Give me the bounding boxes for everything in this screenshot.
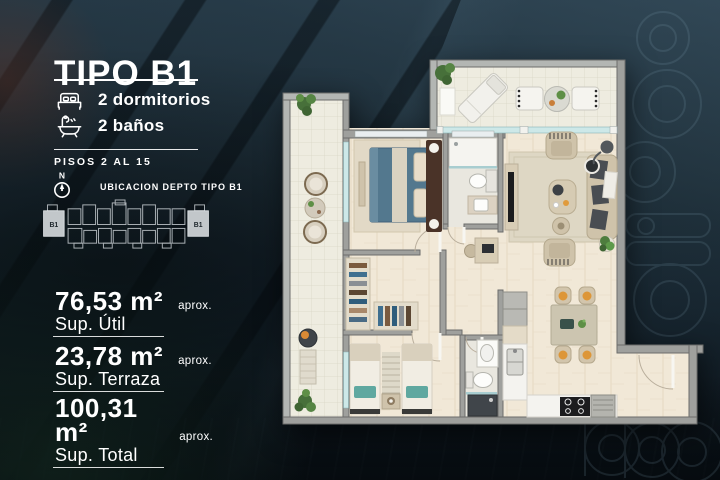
area-util-value: 76,53 m²: [53, 289, 163, 313]
area-terraza-approx: aprox.: [178, 355, 212, 367]
brochure-page: TIPO B1 2 dormitorios: [0, 0, 720, 480]
page-title: TIPO B1: [54, 56, 197, 91]
svg-text:B1: B1: [49, 222, 58, 229]
building-location-map: B1 B1: [42, 199, 210, 252]
area-divider: [53, 336, 164, 337]
area-util-label: Sup. Útil: [53, 314, 213, 334]
area-total-approx: aprox.: [179, 431, 213, 443]
area-terraza: 23,78 m² aprox. Sup. Terraza: [53, 344, 213, 392]
area-total-value: 100,31 m²: [53, 396, 164, 444]
north-compass-icon: N: [52, 170, 72, 200]
area-divider: [53, 391, 164, 392]
floors-label: PISOS 2 AL 15: [54, 156, 152, 168]
info-panel: TIPO B1 2 dormitorios: [0, 0, 720, 480]
feature-bathrooms-label: 2 baños: [98, 116, 164, 136]
area-terraza-label: Sup. Terraza: [53, 369, 213, 389]
unit-highlight: B1: [188, 211, 209, 237]
feature-bathrooms: 2 baños: [56, 114, 164, 138]
unit-highlight: B1: [44, 211, 65, 237]
area-util: 76,53 m² aprox. Sup. Útil: [53, 289, 213, 337]
area-total-label: Sup. Total: [53, 445, 213, 465]
title-divider: [54, 79, 198, 81]
area-total: 100,31 m² aprox. Sup. Total: [53, 396, 213, 468]
location-label: UBICACION DEPTO TIPO B1: [100, 182, 243, 192]
svg-text:B1: B1: [194, 222, 203, 229]
feature-bedrooms-label: 2 dormitorios: [98, 90, 211, 110]
bath-icon: [56, 114, 83, 138]
feature-bedrooms: 2 dormitorios: [56, 88, 211, 112]
area-terraza-value: 23,78 m²: [53, 344, 163, 368]
svg-text:N: N: [59, 171, 65, 181]
area-util-approx: aprox.: [178, 300, 212, 312]
area-divider: [53, 467, 164, 468]
features-divider: [54, 149, 198, 150]
bed-icon: [56, 88, 83, 112]
